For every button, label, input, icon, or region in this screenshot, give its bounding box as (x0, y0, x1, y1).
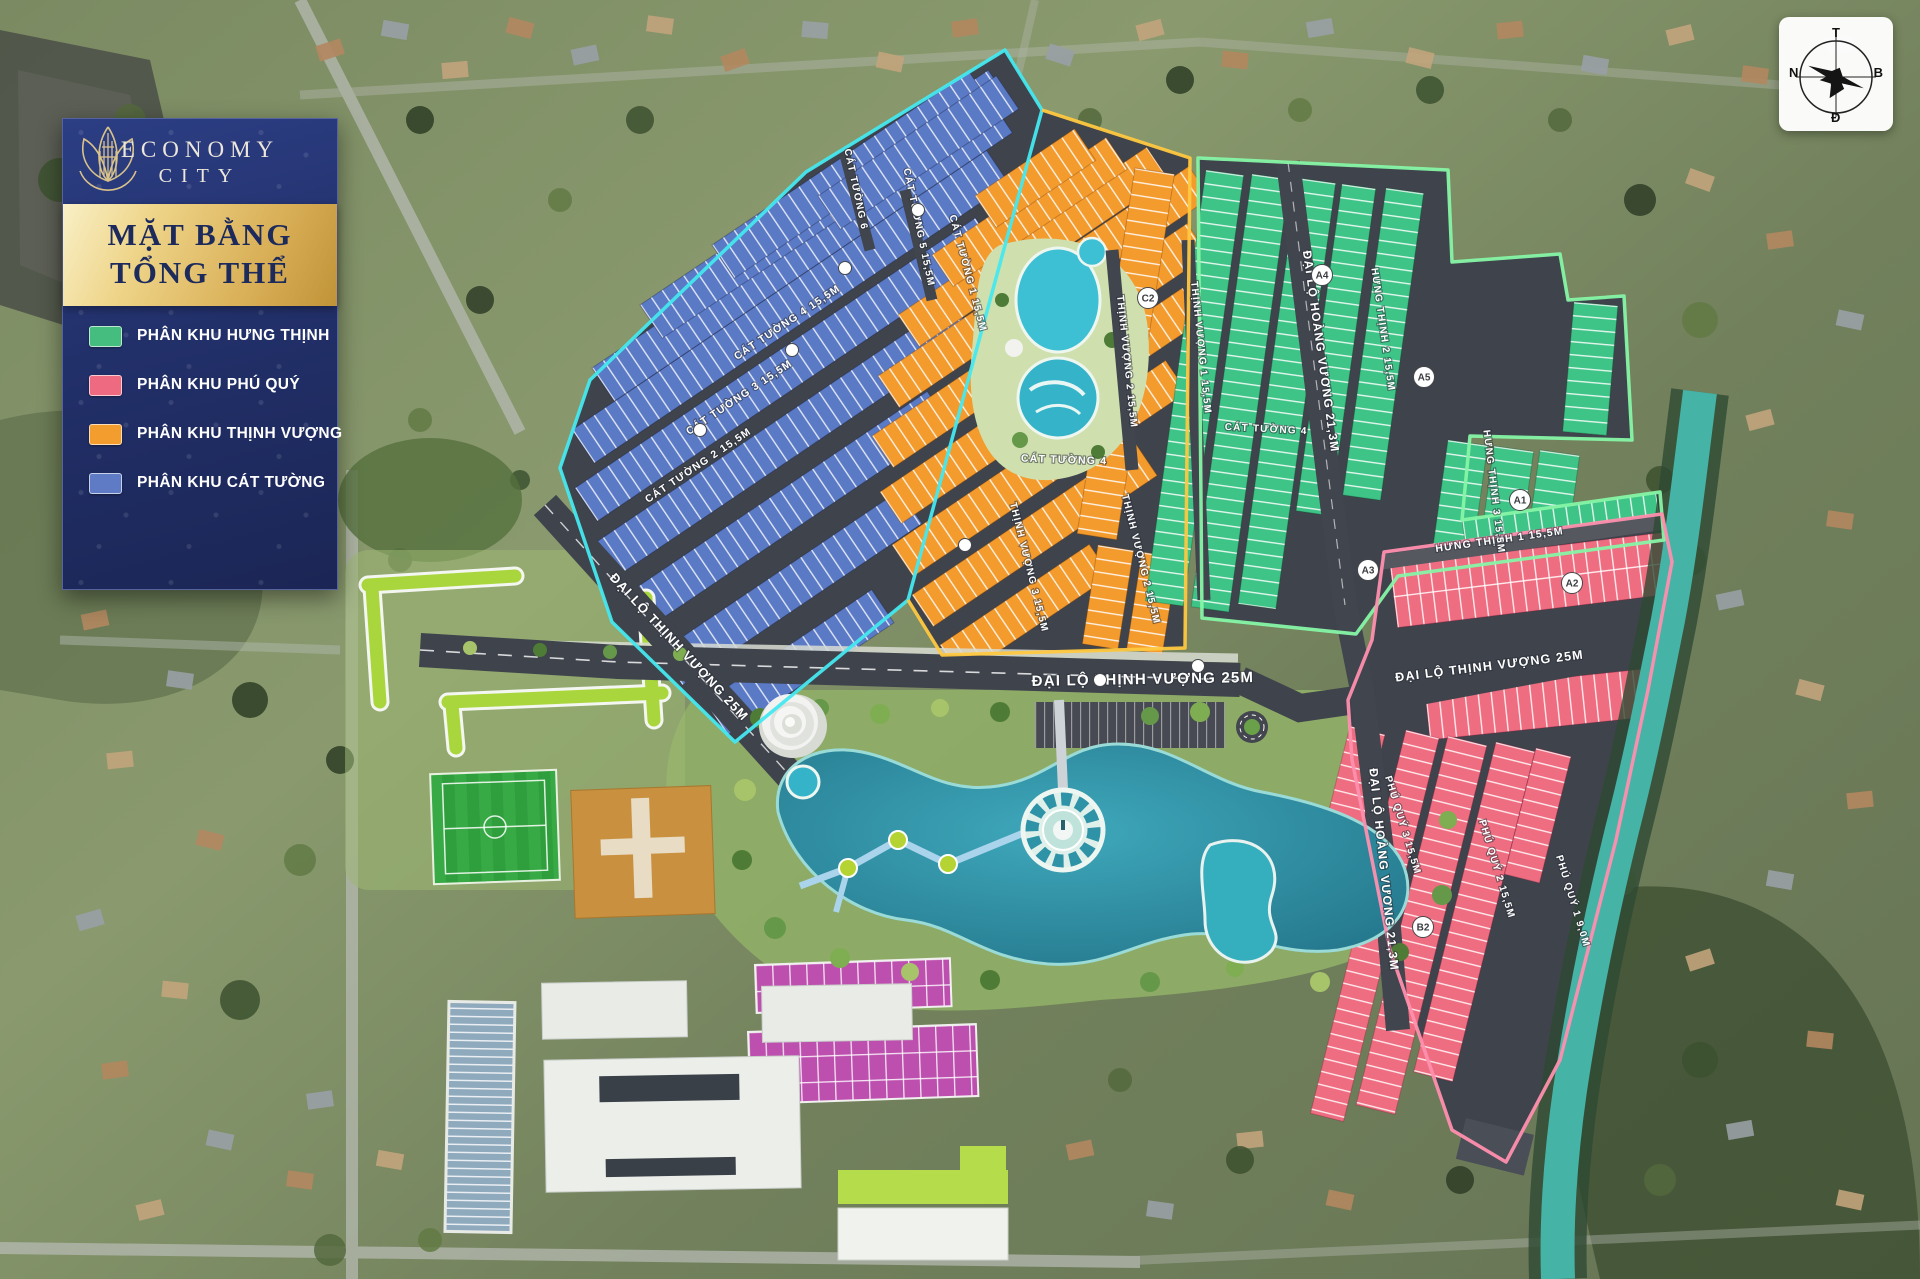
tree (1416, 76, 1444, 104)
compass-rose-icon (1800, 56, 1868, 108)
legend-item-thinh-vuong: PHÂN KHU THỊNH VƯỢNG (89, 424, 337, 445)
house (505, 17, 534, 39)
house (376, 1150, 404, 1170)
park-tree (931, 699, 949, 717)
compass-label-top: T (1832, 25, 1840, 40)
house (1146, 1200, 1174, 1219)
house (1221, 51, 1249, 70)
tree (1624, 184, 1656, 216)
tree (418, 1228, 442, 1252)
house (1665, 24, 1694, 46)
park-tree (830, 948, 850, 968)
grove (338, 438, 522, 562)
civic-cluster (445, 981, 1008, 1260)
park-tree (990, 702, 1010, 722)
tree (284, 844, 316, 876)
park-tree (764, 917, 786, 939)
house (441, 61, 468, 79)
park-tree (870, 704, 890, 724)
house (1685, 168, 1715, 192)
park-tree (1140, 972, 1160, 992)
tree (1288, 98, 1312, 122)
house (1066, 1139, 1095, 1160)
tree (408, 408, 432, 432)
tree (406, 106, 434, 134)
block-badge (1192, 660, 1205, 673)
masterplan-poster: ĐẠI LỘ THỊNH VƯỢNG 25MĐẠI LỘ THỊNH VƯỢNG… (0, 0, 1920, 1279)
house (1405, 47, 1434, 69)
park-tree (1310, 972, 1330, 992)
house (101, 1060, 129, 1079)
house (1326, 1189, 1355, 1210)
house (106, 751, 134, 770)
block-badge-A1: A1 (1510, 490, 1531, 511)
park-tree (1432, 885, 1452, 905)
tree (232, 682, 268, 718)
house (306, 1090, 334, 1109)
house (1135, 19, 1164, 41)
block-badge (1094, 674, 1107, 687)
park-tree (463, 641, 477, 655)
house (135, 1199, 164, 1221)
tree (1108, 1068, 1132, 1092)
park-tree (980, 970, 1000, 990)
legend-label: PHÂN KHU THỊNH VƯỢNG (137, 425, 342, 443)
house (1306, 18, 1334, 38)
plan-title-line2: TỔNG THỂ (63, 254, 337, 292)
amphitheater-island (1023, 790, 1103, 870)
legend-item-cat-tuong: PHÂN KHU CÁT TƯỜNG (89, 473, 337, 494)
tree (1644, 1164, 1676, 1196)
compass: T N B Đ (1779, 17, 1893, 131)
house (1766, 230, 1794, 249)
house (286, 1170, 314, 1189)
legend-label: PHÂN KHU CÁT TƯỜNG (137, 474, 325, 492)
house (161, 981, 189, 1000)
park-tree (603, 645, 617, 659)
sports-hall (544, 1056, 801, 1192)
legend-item-phu-quy: PHÂN KHU PHÚ QUÝ (89, 375, 337, 396)
house (1795, 679, 1824, 701)
block-badge (959, 539, 972, 552)
apartment-slab (445, 1001, 515, 1232)
block-badge-B2: B2 (1413, 917, 1434, 938)
house (1806, 1031, 1834, 1050)
spiral-tower (759, 694, 827, 758)
house (1766, 870, 1794, 890)
tree (314, 1234, 346, 1266)
legend-list: PHÂN KHU HƯNG THỊNHPHÂN KHU PHÚ QUÝPHÂN … (89, 326, 337, 494)
park-tree (1141, 707, 1159, 725)
block-badge-A5: A5 (1414, 367, 1435, 388)
thinh-vuong-swatch (89, 424, 122, 445)
house (571, 44, 600, 65)
block-badge-A4: A4 (1312, 265, 1333, 286)
house (801, 21, 828, 39)
brand-economy: ECONOMY (63, 137, 337, 163)
park-tree (732, 850, 752, 870)
svg-text:A5: A5 (1418, 373, 1431, 384)
svg-text:B2: B2 (1417, 923, 1430, 934)
tree (220, 980, 260, 1020)
tree (1548, 108, 1572, 132)
house (195, 829, 224, 851)
compass-label-bottom: Đ (1831, 110, 1840, 125)
block-badge-A3: A3 (1358, 560, 1379, 581)
svg-text:C2: C2 (1142, 294, 1155, 305)
plan-title-line1: MẶT BẰNG (63, 216, 337, 254)
svg-text:A3: A3 (1362, 566, 1375, 577)
round-pool (787, 766, 819, 798)
house (1745, 409, 1774, 431)
svg-text:A1: A1 (1514, 496, 1527, 507)
house (1716, 589, 1745, 610)
tree (1226, 1146, 1254, 1174)
cat-tuong-swatch (89, 473, 122, 494)
tree (626, 106, 654, 134)
compass-label-right: B (1874, 65, 1883, 80)
house (1496, 21, 1524, 40)
house (1836, 309, 1865, 330)
brand-city: CITY (63, 165, 337, 188)
block-badge (912, 204, 925, 217)
legend-label: PHÂN KHU HƯNG THỊNH (137, 327, 330, 345)
legend-item-hung-thinh: PHÂN KHU HƯNG THỊNH (89, 326, 337, 347)
legend-panel: ECONOMY CITY MẶT BẰNG TỔNG THỂ PHÂN KHU … (62, 118, 338, 590)
tree (548, 188, 572, 212)
house (1826, 510, 1854, 529)
tree (1682, 302, 1718, 338)
plan-title: MẶT BẰNG TỔNG THỂ (63, 204, 337, 306)
economy-city-logo (63, 119, 337, 131)
tree (466, 286, 494, 314)
tree (1166, 66, 1194, 94)
house (1846, 791, 1874, 810)
soccer-field (430, 770, 560, 884)
house (206, 1129, 235, 1150)
block-badge (786, 344, 799, 357)
svg-text:A4: A4 (1316, 271, 1329, 282)
block-badge-A2: A2 (1562, 573, 1583, 594)
house (646, 15, 674, 34)
house (75, 909, 104, 932)
tree (1446, 1166, 1474, 1194)
house (951, 18, 979, 37)
house (381, 20, 409, 40)
park-tree (533, 643, 547, 657)
east-pond (1202, 841, 1276, 963)
park-tree (901, 963, 919, 981)
tree (1682, 1042, 1718, 1078)
park-tree (734, 779, 756, 801)
legend-label: PHÂN KHU PHÚ QUÝ (137, 376, 300, 394)
svg-text:A2: A2 (1566, 579, 1579, 590)
phu-quy-swatch (89, 375, 122, 396)
block-badge (839, 262, 852, 275)
park-tree (1190, 702, 1210, 722)
block-badge (694, 424, 707, 437)
house (876, 51, 905, 72)
hung-thinh-swatch (89, 326, 122, 347)
compass-label-left: N (1789, 65, 1798, 80)
block-badge-C2: C2 (1138, 288, 1159, 309)
park-tree (1439, 811, 1457, 829)
